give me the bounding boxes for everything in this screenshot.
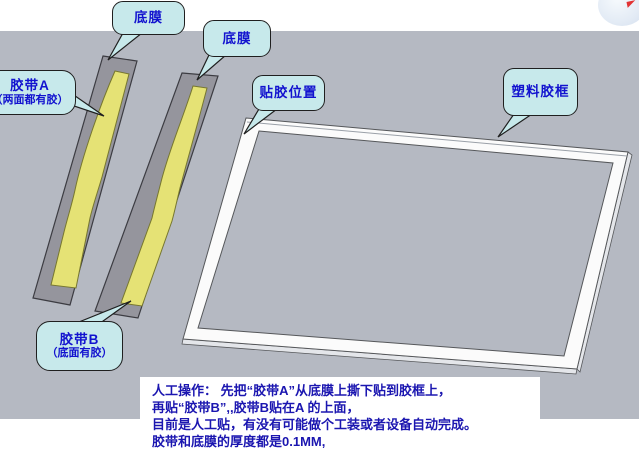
plastic-frame-hole <box>198 131 613 356</box>
note-line: 再贴“胶带B”,,胶带B贴在A 的上面， <box>152 399 540 416</box>
callout-bottom-film-2: 底膜 <box>203 20 271 57</box>
callout-bottom-film-1: 底膜 <box>112 1 185 35</box>
note-line: 人工操作： 先把“胶带A”从底膜上撕下贴到胶框上， <box>152 382 540 399</box>
callout-tape-a: 胶带A （两面都有胶） <box>0 70 76 115</box>
callout-label: 胶带B <box>60 332 100 348</box>
callout-label: 贴胶位置 <box>260 85 318 101</box>
instruction-note: 人工操作： 先把“胶带A”从底膜上撕下贴到胶框上， 再贴“胶带B”,,胶带B贴在… <box>140 377 540 451</box>
callout-tape-b: 胶带B （底面有胶） <box>36 321 123 371</box>
note-line: 目前是人工贴，有没有可能做个工装或者设备自动完成。 <box>152 416 540 433</box>
callout-paste-position: 贴胶位置 <box>252 75 325 111</box>
callout-sublabel: （两面都有胶） <box>0 94 69 107</box>
callout-label: 塑料胶框 <box>512 84 570 100</box>
callout-sublabel: （底面有胶） <box>47 347 113 360</box>
note-line: 胶带和底膜的厚度都是0.1MM, <box>152 433 540 450</box>
diagram-canvas: 底膜 底膜 胶带A （两面都有胶） 贴胶位置 塑料胶框 胶带B （底面有胶） 人… <box>0 0 639 451</box>
callout-label: 底膜 <box>134 10 163 26</box>
callout-label: 胶带A <box>10 78 50 94</box>
callout-plastic-frame: 塑料胶框 <box>503 68 578 116</box>
callout-label: 底膜 <box>223 31 252 47</box>
